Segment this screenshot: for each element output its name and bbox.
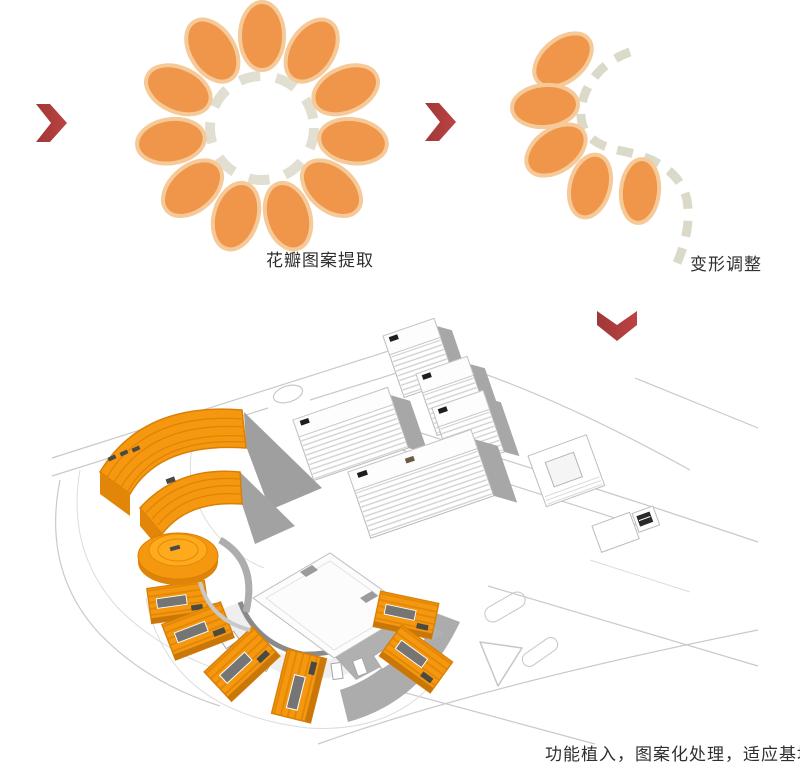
flower-petals	[134, 2, 390, 255]
flower-pattern-figure	[115, 0, 405, 268]
road-island	[480, 642, 522, 686]
arrow-right-icon	[425, 103, 456, 141]
caption-deform: 变形调整	[690, 250, 800, 275]
dashed-circle	[210, 76, 314, 180]
caption-implant: 功能植入，图案化处理，适应基地	[545, 740, 800, 765]
arrow-right-icon	[36, 104, 67, 142]
deformed-pattern-figure	[490, 0, 750, 270]
courtyard-building	[528, 435, 605, 507]
road-island	[271, 382, 304, 406]
caption-extract: 花瓣图案提取	[235, 246, 405, 271]
site-model-figure	[50, 330, 760, 734]
white-towers	[293, 314, 519, 551]
road-island	[482, 589, 528, 625]
petal	[240, 2, 284, 70]
road-island	[520, 635, 561, 669]
small-building-pair	[592, 504, 662, 552]
petal	[618, 157, 661, 224]
curved-ramp	[220, 540, 249, 612]
